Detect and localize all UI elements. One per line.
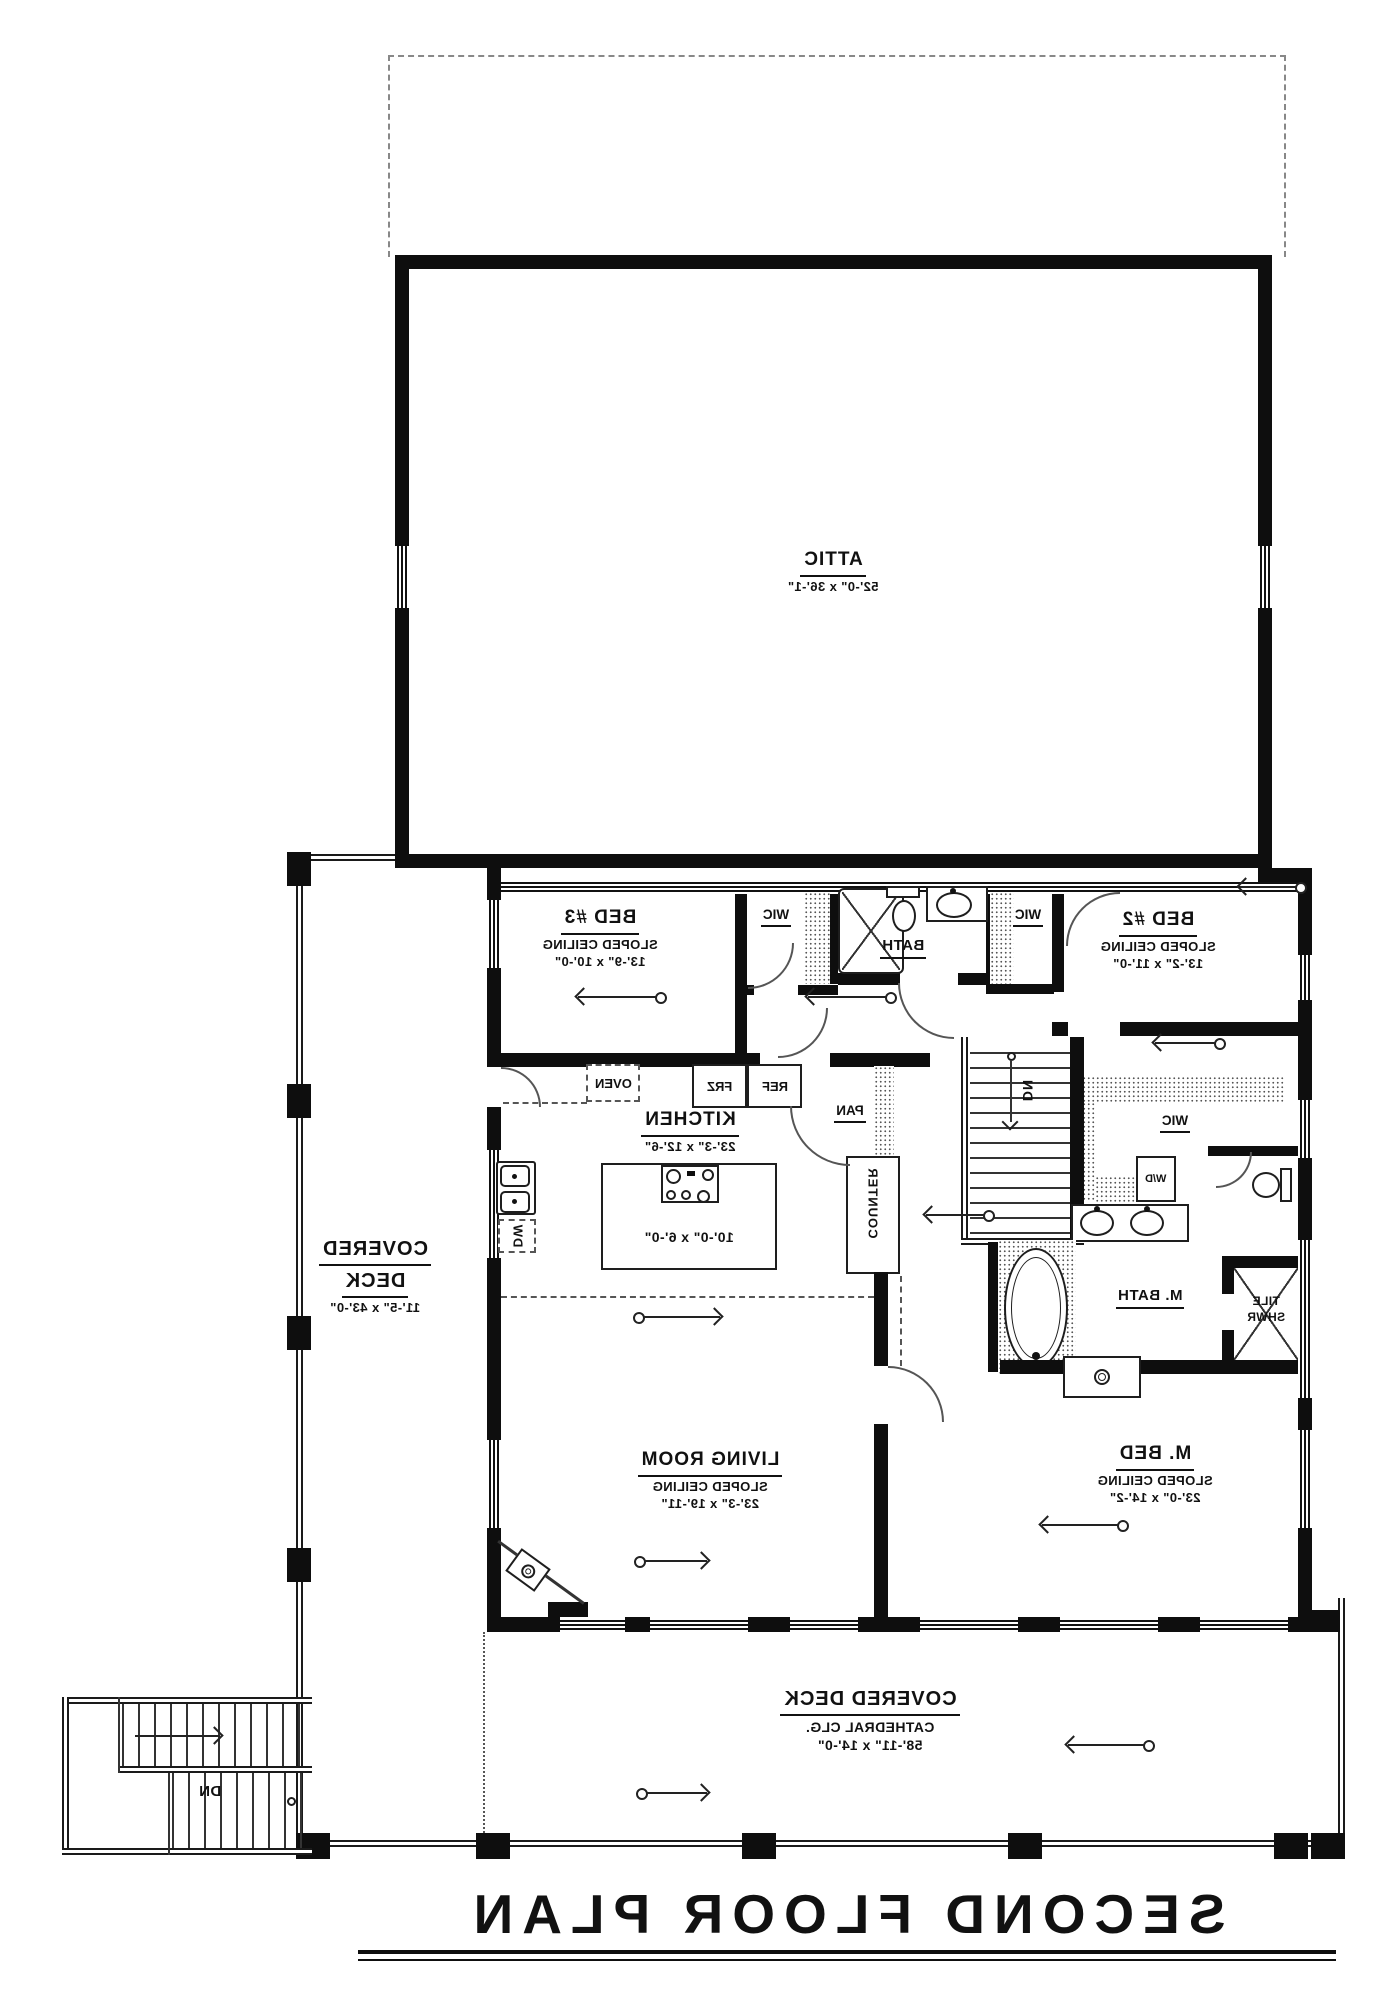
- room-name: M. BATH: [1116, 1286, 1185, 1309]
- tub-inner: [1011, 1257, 1061, 1359]
- kitchen-label: KITCHEN 23'-3" x 12'-6": [600, 1108, 780, 1156]
- fireplace-detail: [1098, 1373, 1106, 1381]
- tile-shwr-label: TILE SHWR: [1234, 1294, 1298, 1325]
- floor-plan: OVEN FRZ REF DW COUNTER DN W/D: [0, 0, 1396, 2000]
- room-name: WIC: [761, 906, 791, 927]
- deck-rail: [1338, 1598, 1345, 1840]
- room-dims: 58'-11" x 14'-0": [818, 1736, 923, 1754]
- fireplace: [1063, 1356, 1141, 1398]
- ext-stair-dn-label: DN: [180, 1782, 240, 1802]
- slope-arrow: [1240, 886, 1298, 888]
- wall: [487, 1107, 501, 1150]
- wall: [487, 1617, 560, 1632]
- window: [650, 1620, 748, 1630]
- window: [1300, 955, 1310, 1000]
- deck-post: [742, 1833, 776, 1859]
- room-name: KITCHEN: [641, 1108, 738, 1137]
- slope-arrow: [643, 1560, 707, 1562]
- window: [1300, 1100, 1310, 1158]
- deck-post: [1312, 1610, 1340, 1632]
- door-arc: [748, 943, 794, 989]
- deck-post: [1311, 1833, 1345, 1859]
- wall: [1000, 1360, 1063, 1374]
- ceiling-break: [900, 1276, 902, 1366]
- burner: [702, 1169, 714, 1181]
- faucet: [950, 888, 956, 894]
- mbed-label: M. BED SLOPED CEILING 23'-0" x 14'-2": [1055, 1442, 1255, 1506]
- wall: [874, 1272, 888, 1366]
- bath-label: BATH: [858, 936, 948, 959]
- room-name: M. BED: [1116, 1442, 1195, 1471]
- wall: [395, 608, 409, 868]
- room-name-line1: COVERED: [319, 1236, 431, 1266]
- freezer: FRZ: [692, 1064, 747, 1108]
- room-name: BED #2: [1119, 908, 1198, 937]
- door-arc: [1216, 1152, 1252, 1188]
- deck-post: [287, 1316, 311, 1350]
- wall: [1018, 1617, 1060, 1632]
- slope-arrow: [926, 1214, 986, 1216]
- wall: [838, 973, 900, 985]
- deck-post: [1008, 1833, 1042, 1859]
- wall: [1222, 1330, 1234, 1360]
- room-dims: 13'-9" x 10'-0": [555, 954, 646, 971]
- wall: [830, 1053, 930, 1067]
- deck-bottom-label: COVERED DECK CATHEDRAL CLG. 58'-11" x 14…: [720, 1686, 1020, 1754]
- room-ceiling: SLOPED CEILING: [652, 1479, 767, 1496]
- deck-rail: [296, 1840, 1345, 1847]
- wall: [1141, 1360, 1298, 1374]
- wall: [487, 868, 501, 900]
- closet-shelving: [1073, 1076, 1285, 1102]
- room-name: WIC: [1160, 1112, 1190, 1133]
- room-ceiling: SLOPED CEILING: [542, 937, 657, 954]
- refrigerator: REF: [747, 1064, 802, 1108]
- drain: [512, 1174, 517, 1179]
- wall: [1222, 1256, 1298, 1268]
- oven: OVEN: [586, 1064, 640, 1102]
- window: [489, 900, 499, 968]
- room-name-line2: SHWR: [1247, 1310, 1285, 1326]
- burner: [681, 1190, 691, 1200]
- wall: [1222, 1268, 1234, 1294]
- wall: [1298, 1398, 1312, 1430]
- slope-arrow: [1042, 1524, 1120, 1526]
- room-dims: 23'-3" x 19'-11": [661, 1496, 759, 1513]
- wall: [1298, 1000, 1312, 1100]
- wall: [1052, 1022, 1068, 1036]
- door-arc: [898, 983, 954, 1039]
- wall: [1258, 608, 1272, 868]
- corner-fireplace: [505, 1548, 551, 1592]
- washer-dryer: W/D: [1136, 1156, 1176, 1202]
- mbath-label: M. BATH: [1095, 1286, 1205, 1309]
- ext-stair-divider: [118, 1697, 120, 1773]
- toilet-tank: [886, 886, 920, 898]
- counter-label: COUNTER: [866, 1169, 881, 1239]
- window: [1300, 1430, 1310, 1528]
- deck-post: [287, 1548, 311, 1582]
- ceiling-break: [501, 1296, 874, 1298]
- slope-arrow: [642, 1316, 720, 1318]
- room-name-line1: TILE: [1252, 1294, 1280, 1310]
- wall: [1298, 1158, 1312, 1240]
- window: [1260, 546, 1270, 608]
- room-dims: 11'-5" x 43'-0": [330, 1300, 420, 1317]
- wall: [625, 1617, 650, 1632]
- island-dims: 10'-0" x 6'-0": [644, 1228, 733, 1246]
- wall: [1288, 1617, 1312, 1632]
- slope-arrow: [645, 1792, 707, 1794]
- burner: [697, 1190, 710, 1203]
- deck-post: [476, 1833, 510, 1859]
- island-label: 10'-0" x 6'-0": [614, 1228, 764, 1246]
- bed2-label: BED #2 SLOPED CEILING 13'-2" x 11'-0": [1068, 908, 1248, 972]
- ext-stair-rail: [62, 1848, 312, 1855]
- window: [397, 546, 407, 608]
- door-arc: [778, 1008, 828, 1058]
- faucet: [1144, 1206, 1150, 1212]
- room-name: BED #3: [561, 906, 640, 935]
- wall: [748, 1617, 790, 1632]
- ext-stair-rail: [62, 1697, 69, 1855]
- washer-dryer-label: W/D: [1145, 1173, 1166, 1185]
- door-arc: [888, 1366, 944, 1422]
- bed3-label: BED #3 SLOPED CEILING 13'-9" x 10'-0": [510, 906, 690, 970]
- tub-faucet: [1032, 1352, 1040, 1360]
- mbath-sink: [1130, 1210, 1164, 1236]
- room-ceiling: SLOPED CEILING: [1100, 939, 1215, 956]
- rail-post: [287, 1797, 296, 1806]
- wall: [874, 1424, 888, 1632]
- bath-sink: [936, 892, 972, 918]
- slope-arrow: [1068, 1744, 1146, 1746]
- wic2-label: WIC: [995, 906, 1061, 927]
- wall: [487, 1258, 501, 1440]
- room-dims: 23'-0" x 14'-2": [1110, 1490, 1201, 1507]
- drain: [512, 1199, 517, 1204]
- toilet-tank: [1280, 1168, 1292, 1202]
- ext-stair-rail: [62, 1697, 312, 1704]
- room-name: WIC: [1013, 906, 1043, 927]
- living-label: LIVING ROOM SLOPED CEILING 23'-3" x 19'-…: [610, 1448, 810, 1512]
- faucet: [1094, 1206, 1100, 1212]
- ext-stair-rail: [118, 1766, 312, 1773]
- mbath-sink: [1080, 1210, 1114, 1236]
- title-underline: [358, 1950, 1336, 1954]
- dishwasher-label: DW: [511, 1216, 526, 1256]
- stair-dn-label: DN: [1020, 1070, 1036, 1110]
- wall: [1258, 255, 1272, 546]
- stair-rail: [961, 1037, 968, 1242]
- room-name-line2: DECK: [342, 1268, 409, 1298]
- sheet-title: SECOND FLOOR PLAN: [350, 1882, 1340, 1946]
- room-name: LIVING ROOM: [638, 1448, 783, 1477]
- room-ceiling: CATHEDRAL CLG.: [806, 1718, 935, 1736]
- window: [560, 1620, 625, 1630]
- room-dims: 23'-3" x 12'-6": [645, 1139, 736, 1156]
- wall: [858, 1617, 920, 1632]
- slope-arrow: [578, 996, 658, 998]
- dn-text: DN: [199, 1782, 221, 1802]
- slope-arrow: [808, 996, 888, 998]
- slope-arrow: [1155, 1042, 1217, 1044]
- ext-stair-divider: [168, 1773, 170, 1855]
- stair-direction-arrow: [135, 1735, 220, 1737]
- wic3-label: WIC: [1140, 1112, 1210, 1133]
- burner: [666, 1169, 681, 1184]
- wall: [395, 255, 1272, 269]
- deck-post: [287, 852, 311, 886]
- wall: [395, 854, 1272, 868]
- burner-knob: [687, 1171, 695, 1176]
- window: [920, 1620, 1018, 1630]
- deck-post: [1274, 1833, 1308, 1859]
- room-name: COVERED DECK: [780, 1686, 959, 1716]
- wic1-label: WIC: [741, 906, 811, 927]
- roof-outline: [388, 55, 1286, 257]
- room-dims: 13'-2" x 11'-0": [1113, 956, 1203, 973]
- title-underline: [358, 1959, 1336, 1961]
- wall: [998, 984, 1054, 994]
- attic-label: ATTIC 52'-0" x 36'-1": [733, 548, 933, 596]
- window: [1300, 1240, 1310, 1398]
- deck-left-label: COVERED DECK 11'-5" x 43'-0": [295, 1236, 455, 1317]
- wall: [1158, 1617, 1200, 1632]
- freezer-label: FRZ: [707, 1079, 732, 1094]
- room-dims: 52'-0" x 36'-1": [788, 579, 879, 596]
- oven-label: OVEN: [595, 1076, 632, 1091]
- window: [1200, 1620, 1288, 1630]
- stair-arrow-line: [1010, 1060, 1012, 1122]
- roofline-dotted: [483, 1632, 485, 1840]
- room-name: ATTIC: [800, 548, 866, 577]
- toilet-bowl: [892, 900, 916, 932]
- room-name: BATH: [880, 936, 927, 959]
- room-name: PAN: [834, 1102, 866, 1123]
- refrigerator-label: REF: [762, 1079, 788, 1094]
- window: [790, 1620, 858, 1630]
- pantry-label: PAN: [820, 1102, 880, 1123]
- toilet-bowl: [1252, 1172, 1280, 1198]
- wall: [1120, 1022, 1298, 1036]
- room-ceiling: SLOPED CEILING: [1097, 1473, 1212, 1490]
- burner: [666, 1190, 676, 1200]
- window: [1060, 1620, 1158, 1630]
- door-arc: [501, 1067, 541, 1107]
- deck-post: [287, 1084, 311, 1118]
- wall: [487, 1528, 501, 1562]
- wall: [395, 255, 409, 546]
